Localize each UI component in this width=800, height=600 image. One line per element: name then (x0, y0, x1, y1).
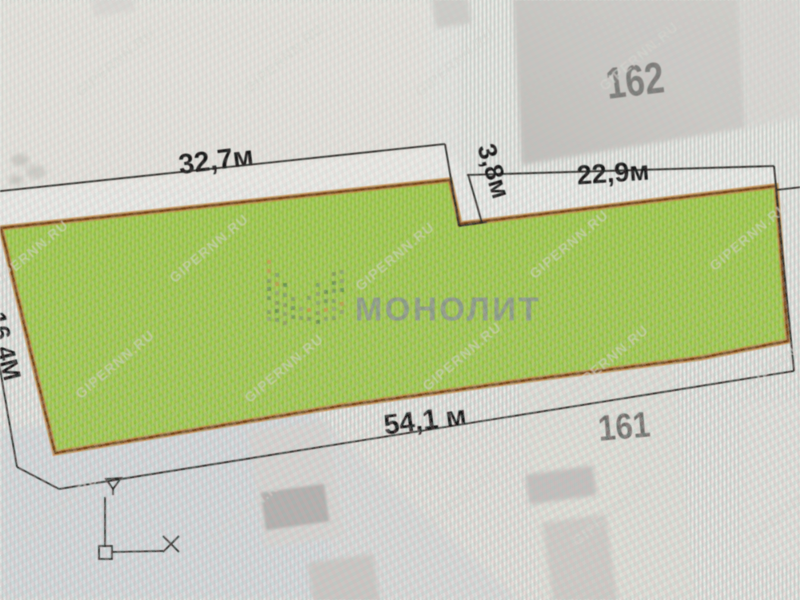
svg-text:161: 161 (596, 403, 651, 448)
svg-text:22,9м: 22,9м (576, 156, 650, 191)
svg-text:МОНОЛИТ: МОНОЛИТ (355, 291, 541, 328)
